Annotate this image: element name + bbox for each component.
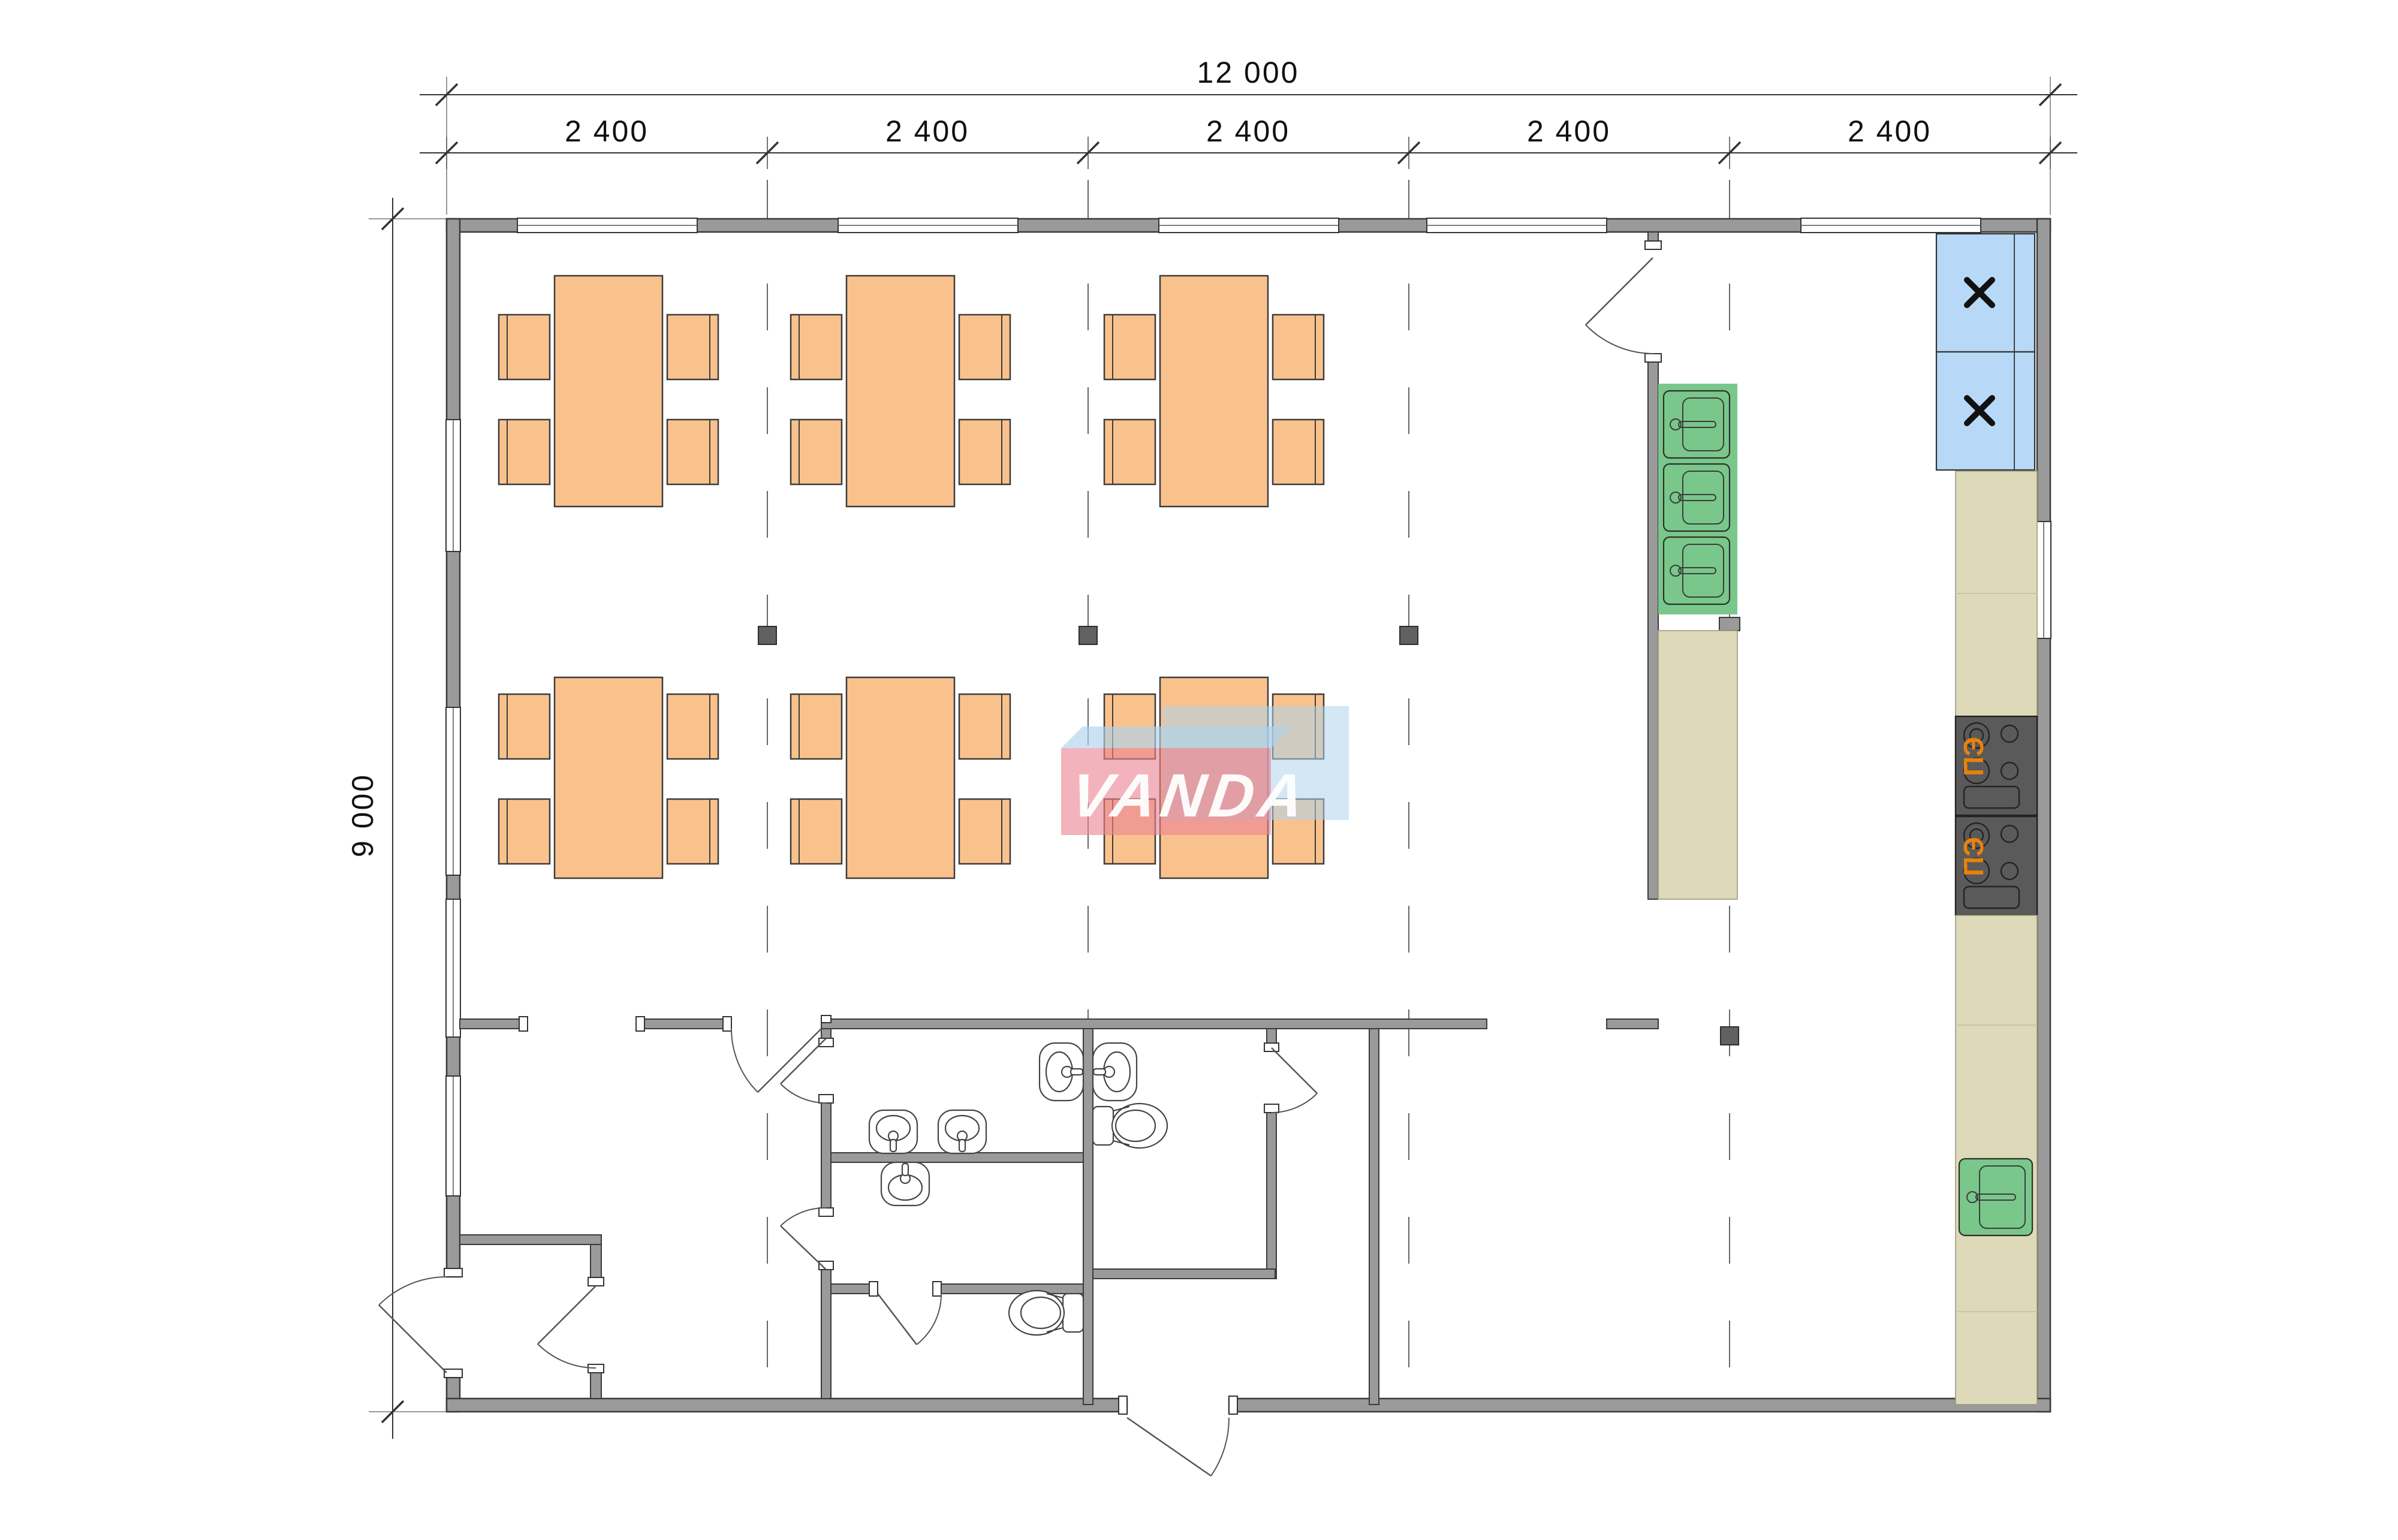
table-group-3 xyxy=(1104,276,1324,507)
overall-width-label: 12 000 xyxy=(1197,56,1300,89)
door-corridor-to-washroom xyxy=(781,1038,826,1103)
wall-wc-left-south-a xyxy=(831,1284,869,1294)
wall-washroom-mid xyxy=(831,1153,1083,1162)
window-left-3 xyxy=(446,899,460,1037)
toilet-right xyxy=(1093,1104,1167,1148)
window-top-4 xyxy=(1427,218,1607,233)
wall-bath-west-c xyxy=(821,1270,831,1399)
bay-width-label: 2 400 xyxy=(1206,114,1290,148)
wall-bath-west-b xyxy=(821,1103,831,1208)
window-top-5 xyxy=(1801,218,1981,233)
washbasin-pair-left xyxy=(1040,1043,1083,1101)
watermark-box-top xyxy=(1061,727,1293,748)
appliance-run: ПЭ ПЭ xyxy=(1936,234,2037,1405)
wall-bath-east xyxy=(1369,1029,1379,1405)
column xyxy=(1079,626,1097,644)
wall-bottom-left xyxy=(447,1399,1127,1412)
washbasin-wc-left xyxy=(881,1162,929,1206)
stove-label: ПЭ xyxy=(1958,737,1989,776)
wall-vestibule-north xyxy=(460,1235,601,1244)
dining-table xyxy=(555,276,662,507)
window-top-3 xyxy=(1159,218,1339,233)
wall-right xyxy=(2037,219,2050,1412)
column xyxy=(758,626,776,644)
floor-plan-drawing: 12 000 2 400 2 400 2 400 2 400 2 400 9 0… xyxy=(0,0,2398,1540)
height-label: 9 000 xyxy=(346,773,379,857)
window-top-1 xyxy=(517,218,697,233)
wall-bath-north-d xyxy=(1607,1019,1658,1029)
wall-bath-west-a xyxy=(821,1029,831,1038)
door-vestibule xyxy=(538,1286,596,1368)
stove-label: ПЭ xyxy=(1958,837,1989,876)
table-group-5 xyxy=(791,677,1010,878)
door-washroom-to-wc xyxy=(878,1294,941,1345)
dining-table xyxy=(846,677,954,878)
wall-bottom-right xyxy=(1229,1399,2050,1412)
window-left-1 xyxy=(446,420,460,551)
door-kitchen xyxy=(1586,258,1653,354)
column xyxy=(1400,626,1418,644)
wall-kitchen-hatch-stub xyxy=(1719,617,1740,631)
door-main-entrance xyxy=(1127,1418,1229,1476)
dimension-height: 9 000 xyxy=(346,198,450,1439)
kitchen-zone xyxy=(1658,384,1737,899)
bay-width-label: 2 400 xyxy=(885,114,969,148)
wall-bath-north-a xyxy=(460,1019,528,1029)
wall-bath-centre xyxy=(1083,1029,1093,1405)
window-left-4 xyxy=(446,1076,460,1196)
washbasin-washroom-2 xyxy=(938,1110,986,1153)
triple-sink xyxy=(1664,391,1730,604)
wall-bath-north-c xyxy=(821,1019,1487,1029)
fridge-1 xyxy=(1936,234,2035,352)
serving-counter xyxy=(1658,631,1737,899)
wall-bath-north-b xyxy=(644,1019,731,1029)
wall-vestibule-east-b xyxy=(591,1373,601,1399)
bay-width-label: 2 400 xyxy=(1527,114,1611,148)
washbasin-pair-right xyxy=(1093,1043,1137,1101)
table-group-1 xyxy=(499,276,718,507)
wall-wc-right-east-b xyxy=(1267,1113,1276,1279)
washbasin-washroom-1 xyxy=(869,1110,917,1153)
floor-plan-page: 12 000 2 400 2 400 2 400 2 400 2 400 9 0… xyxy=(0,0,2398,1540)
stove-1: ПЭ xyxy=(1956,716,2037,815)
bay-width-label: 2 400 xyxy=(1848,114,1932,148)
dining-table xyxy=(555,677,662,878)
watermark-text: VANDA xyxy=(1067,761,1313,829)
fridge-2 xyxy=(1936,352,2035,470)
table-group-4 xyxy=(499,677,718,878)
dining-table xyxy=(846,276,954,507)
dimension-bays: 2 400 2 400 2 400 2 400 2 400 xyxy=(420,114,2077,169)
window-left-2 xyxy=(446,707,460,875)
wall-wc-right-east-a xyxy=(1267,1029,1276,1043)
bay-width-label: 2 400 xyxy=(565,114,649,148)
door-corridor-to-wc-left xyxy=(781,1208,826,1270)
wall-kitchen-b xyxy=(1648,362,1658,899)
stove-2: ПЭ xyxy=(1956,816,2037,915)
window-top-2 xyxy=(838,218,1018,233)
toilet-left xyxy=(1009,1291,1083,1335)
single-sink xyxy=(1959,1159,2032,1235)
column xyxy=(1721,1027,1739,1045)
door-side-exit xyxy=(379,1277,447,1373)
window-right-1 xyxy=(2037,522,2051,638)
wall-wc-right-south xyxy=(1093,1269,1275,1279)
dining-table xyxy=(1160,276,1268,507)
door-wc-right xyxy=(1272,1048,1317,1113)
wall-wc-left-south-b xyxy=(941,1284,1083,1294)
table-group-2 xyxy=(791,276,1010,507)
door-dining-to-corridor xyxy=(731,1029,821,1092)
